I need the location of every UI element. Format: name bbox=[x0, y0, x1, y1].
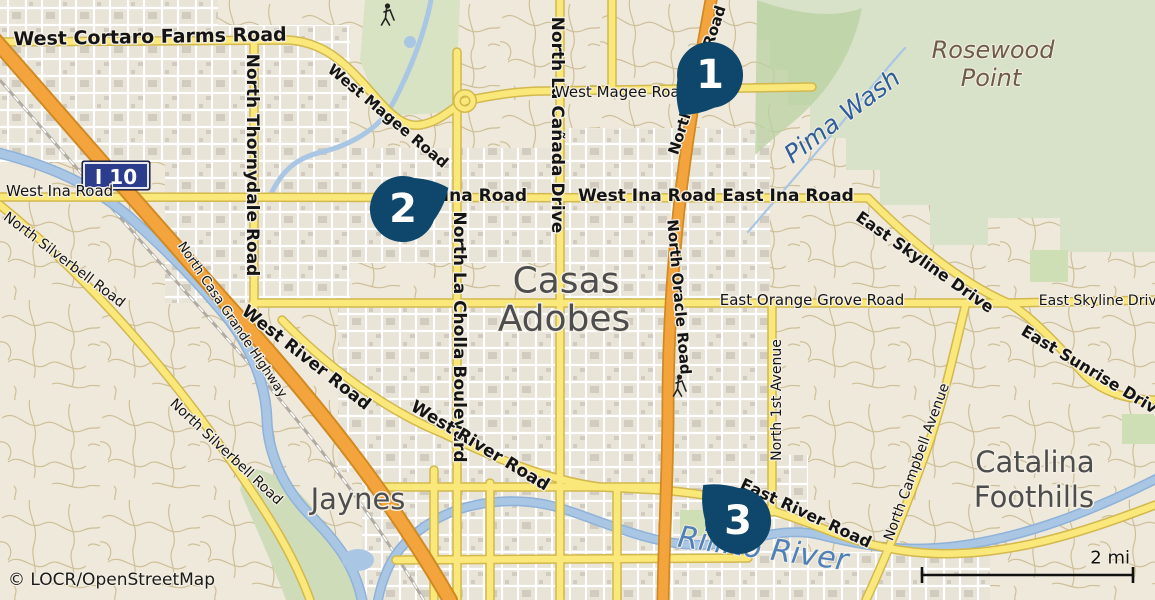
road-east-skyline-drive-right: East Skyline Drive bbox=[1039, 293, 1155, 309]
road-east-ina-road: East Ina Road bbox=[722, 186, 853, 206]
place-rosewood-point-line2: Point bbox=[961, 64, 1023, 92]
road-north-1st-avenue: North 1st Avenue bbox=[769, 339, 785, 461]
road-north-thornydale-road: North Thornydale Road bbox=[242, 54, 262, 277]
small-park-2 bbox=[1122, 414, 1155, 444]
place-casas-adobes-line2: Adobes bbox=[498, 299, 631, 340]
map-attribution: © LOCR/OpenStreetMap bbox=[8, 570, 215, 590]
pin-number: 2 bbox=[389, 186, 417, 232]
road-east-orange-grove-road: East Orange Grove Road bbox=[720, 291, 904, 309]
scale-bar-label: 2 mi bbox=[1090, 548, 1130, 569]
road-north-la-canada-drive: North La Cañada Drive bbox=[547, 17, 567, 234]
road-west-ina-road-left: West Ina Road bbox=[6, 182, 113, 200]
place-catalina-foothills-line1: Catalina bbox=[975, 445, 1094, 479]
map-canvas[interactable]: I 10 West Cortaro Farms RoadWest Magee R… bbox=[0, 0, 1155, 600]
place-jaynes: Jaynes bbox=[309, 482, 406, 516]
road-west-magee-road: West Magee Road bbox=[555, 83, 689, 101]
road-west-ina-road-center: West Ina Road bbox=[578, 186, 716, 206]
pin-number: 3 bbox=[724, 498, 752, 544]
small-park-1 bbox=[1030, 250, 1068, 282]
place-rosewood-point-line1: Rosewood bbox=[932, 36, 1056, 64]
place-casas-adobes-line1: Casas bbox=[513, 261, 620, 302]
golf-pond bbox=[404, 36, 416, 48]
pond-1 bbox=[342, 549, 374, 571]
map-viewport[interactable]: I 10 West Cortaro Farms RoadWest Magee R… bbox=[0, 0, 1155, 600]
place-catalina-foothills-line2: Foothills bbox=[974, 480, 1094, 514]
pin-number: 1 bbox=[696, 52, 724, 98]
